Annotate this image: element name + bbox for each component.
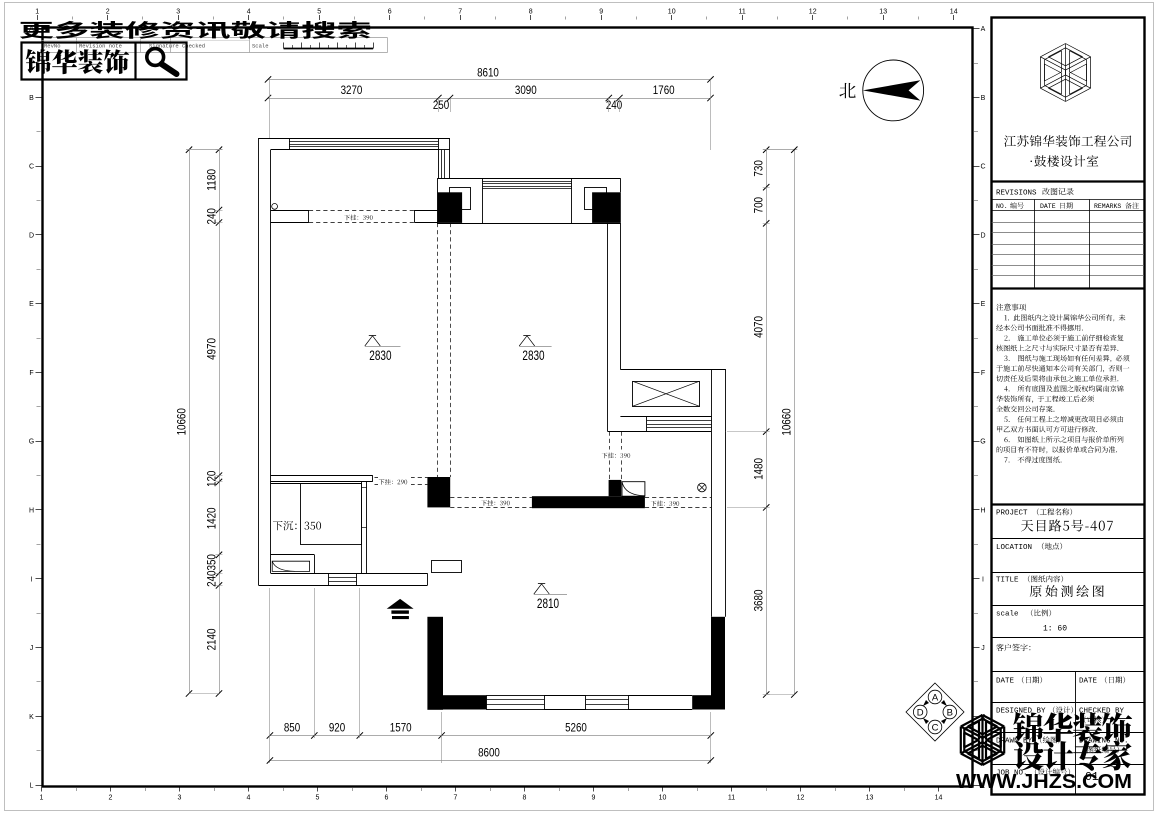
svg-text:REMARKS: REMARKS [1094, 203, 1121, 210]
svg-text:2: 2 [106, 9, 110, 16]
svg-text:6: 6 [388, 9, 392, 16]
svg-text:F: F [29, 370, 33, 377]
svg-text:3270: 3270 [341, 83, 363, 97]
svg-text:E: E [29, 301, 34, 308]
svg-text:8: 8 [529, 9, 533, 16]
svg-text:scale: scale [996, 611, 1019, 619]
svg-text:13: 13 [866, 795, 874, 802]
svg-text:12: 12 [797, 795, 805, 802]
svg-text:H: H [980, 507, 985, 514]
svg-text:14: 14 [935, 795, 943, 802]
svg-text:DATE: DATE [1040, 203, 1056, 210]
svg-text:4: 4 [247, 9, 251, 16]
svg-text:DESIGNED BY: DESIGNED BY [996, 708, 1046, 716]
svg-text:8600: 8600 [478, 745, 500, 759]
svg-text:4070: 4070 [752, 316, 766, 338]
svg-text:700: 700 [752, 197, 766, 214]
svg-text:B: B [29, 95, 34, 102]
svg-text:920: 920 [329, 720, 346, 734]
svg-text:C: C [980, 164, 985, 171]
svg-text:2810: 2810 [537, 595, 559, 611]
svg-text:5260: 5260 [565, 720, 587, 734]
svg-text:7: 7 [458, 9, 462, 16]
svg-text:9: 9 [599, 9, 603, 16]
svg-text:D: D [980, 232, 985, 239]
svg-text:PROJECT: PROJECT [996, 510, 1028, 518]
svg-text:I: I [31, 576, 33, 583]
svg-text:1570: 1570 [390, 720, 412, 734]
svg-text:2140: 2140 [205, 628, 219, 650]
svg-text:Scale: Scale [252, 43, 269, 50]
svg-text:REVISIONS: REVISIONS [996, 189, 1037, 197]
svg-text:8: 8 [523, 795, 527, 802]
svg-text:G: G [980, 439, 985, 446]
svg-text:1: 60: 1: 60 [1043, 625, 1067, 634]
svg-text:250: 250 [433, 98, 450, 112]
svg-text:10: 10 [659, 795, 667, 802]
svg-text:1: 1 [35, 9, 39, 16]
svg-text:A: A [981, 26, 986, 33]
svg-text:11: 11 [728, 795, 735, 802]
svg-text:240350: 240350 [205, 554, 219, 587]
svg-text:3090: 3090 [515, 83, 537, 97]
svg-text:14: 14 [950, 9, 958, 16]
svg-text:730: 730 [752, 160, 766, 177]
svg-text:11: 11 [739, 9, 746, 16]
svg-text:NO.: NO. [996, 203, 1008, 210]
svg-text:6: 6 [385, 795, 389, 802]
svg-text:4970: 4970 [205, 338, 219, 360]
svg-text:5: 5 [316, 795, 320, 802]
svg-text:TITLE: TITLE [996, 577, 1019, 585]
svg-text:A: A [932, 693, 939, 704]
svg-text:5: 5 [317, 9, 321, 16]
svg-text:10660: 10660 [175, 408, 189, 435]
svg-text:2830: 2830 [522, 347, 544, 363]
svg-text:D: D [917, 708, 924, 719]
svg-text:13: 13 [879, 9, 887, 16]
svg-text:DATE: DATE [996, 678, 1015, 686]
svg-text:3: 3 [178, 795, 182, 802]
svg-text:1180: 1180 [205, 169, 219, 191]
svg-text:3: 3 [176, 9, 180, 16]
svg-text:10660: 10660 [780, 408, 794, 435]
svg-text:C: C [932, 723, 939, 734]
svg-text:8610: 8610 [477, 66, 499, 80]
svg-text:3680: 3680 [752, 589, 766, 611]
svg-text:850: 850 [284, 720, 301, 734]
svg-text:D: D [29, 232, 34, 239]
svg-text:4: 4 [247, 795, 251, 802]
svg-text:120: 120 [205, 470, 219, 487]
svg-text:1420: 1420 [205, 507, 219, 529]
svg-text:C: C [29, 164, 34, 171]
svg-text:12: 12 [809, 9, 817, 16]
svg-text:F: F [981, 370, 985, 377]
svg-text:J: J [981, 645, 985, 652]
svg-text:7: 7 [454, 795, 458, 802]
svg-text:L: L [30, 783, 34, 790]
svg-text:K: K [29, 714, 34, 721]
svg-text:DATE: DATE [1079, 678, 1098, 686]
svg-text:B: B [981, 95, 986, 102]
svg-text:10: 10 [668, 9, 676, 16]
svg-text:B: B [947, 708, 953, 719]
svg-text:9: 9 [592, 795, 596, 802]
svg-text:1480: 1480 [752, 458, 766, 480]
svg-text:I: I [982, 576, 984, 583]
svg-text:G: G [29, 439, 34, 446]
svg-text:2830: 2830 [369, 347, 391, 363]
svg-text:1760: 1760 [653, 83, 675, 97]
svg-text:H: H [29, 507, 34, 514]
svg-text:E: E [981, 301, 986, 308]
svg-text:1: 1 [40, 795, 44, 802]
svg-text:LOCATION: LOCATION [996, 544, 1032, 552]
svg-text:2: 2 [109, 795, 113, 802]
svg-text:J: J [30, 645, 34, 652]
svg-text:WWW.JHZS.COM: WWW.JHZS.COM [956, 770, 1132, 793]
